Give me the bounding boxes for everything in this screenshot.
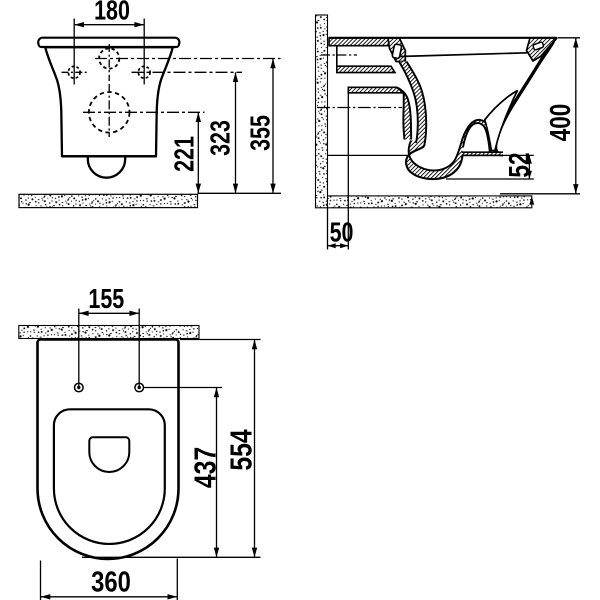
svg-text:323: 323 <box>206 120 236 156</box>
svg-text:554: 554 <box>224 429 258 471</box>
svg-text:50: 50 <box>330 218 354 248</box>
svg-text:180: 180 <box>94 0 130 26</box>
svg-text:355: 355 <box>246 115 276 151</box>
svg-text:360: 360 <box>91 565 131 598</box>
svg-text:437: 437 <box>188 447 222 488</box>
svg-text:221: 221 <box>170 136 200 172</box>
svg-text:155: 155 <box>88 284 124 314</box>
svg-text:400: 400 <box>543 104 576 142</box>
svg-text:52: 52 <box>502 152 535 177</box>
